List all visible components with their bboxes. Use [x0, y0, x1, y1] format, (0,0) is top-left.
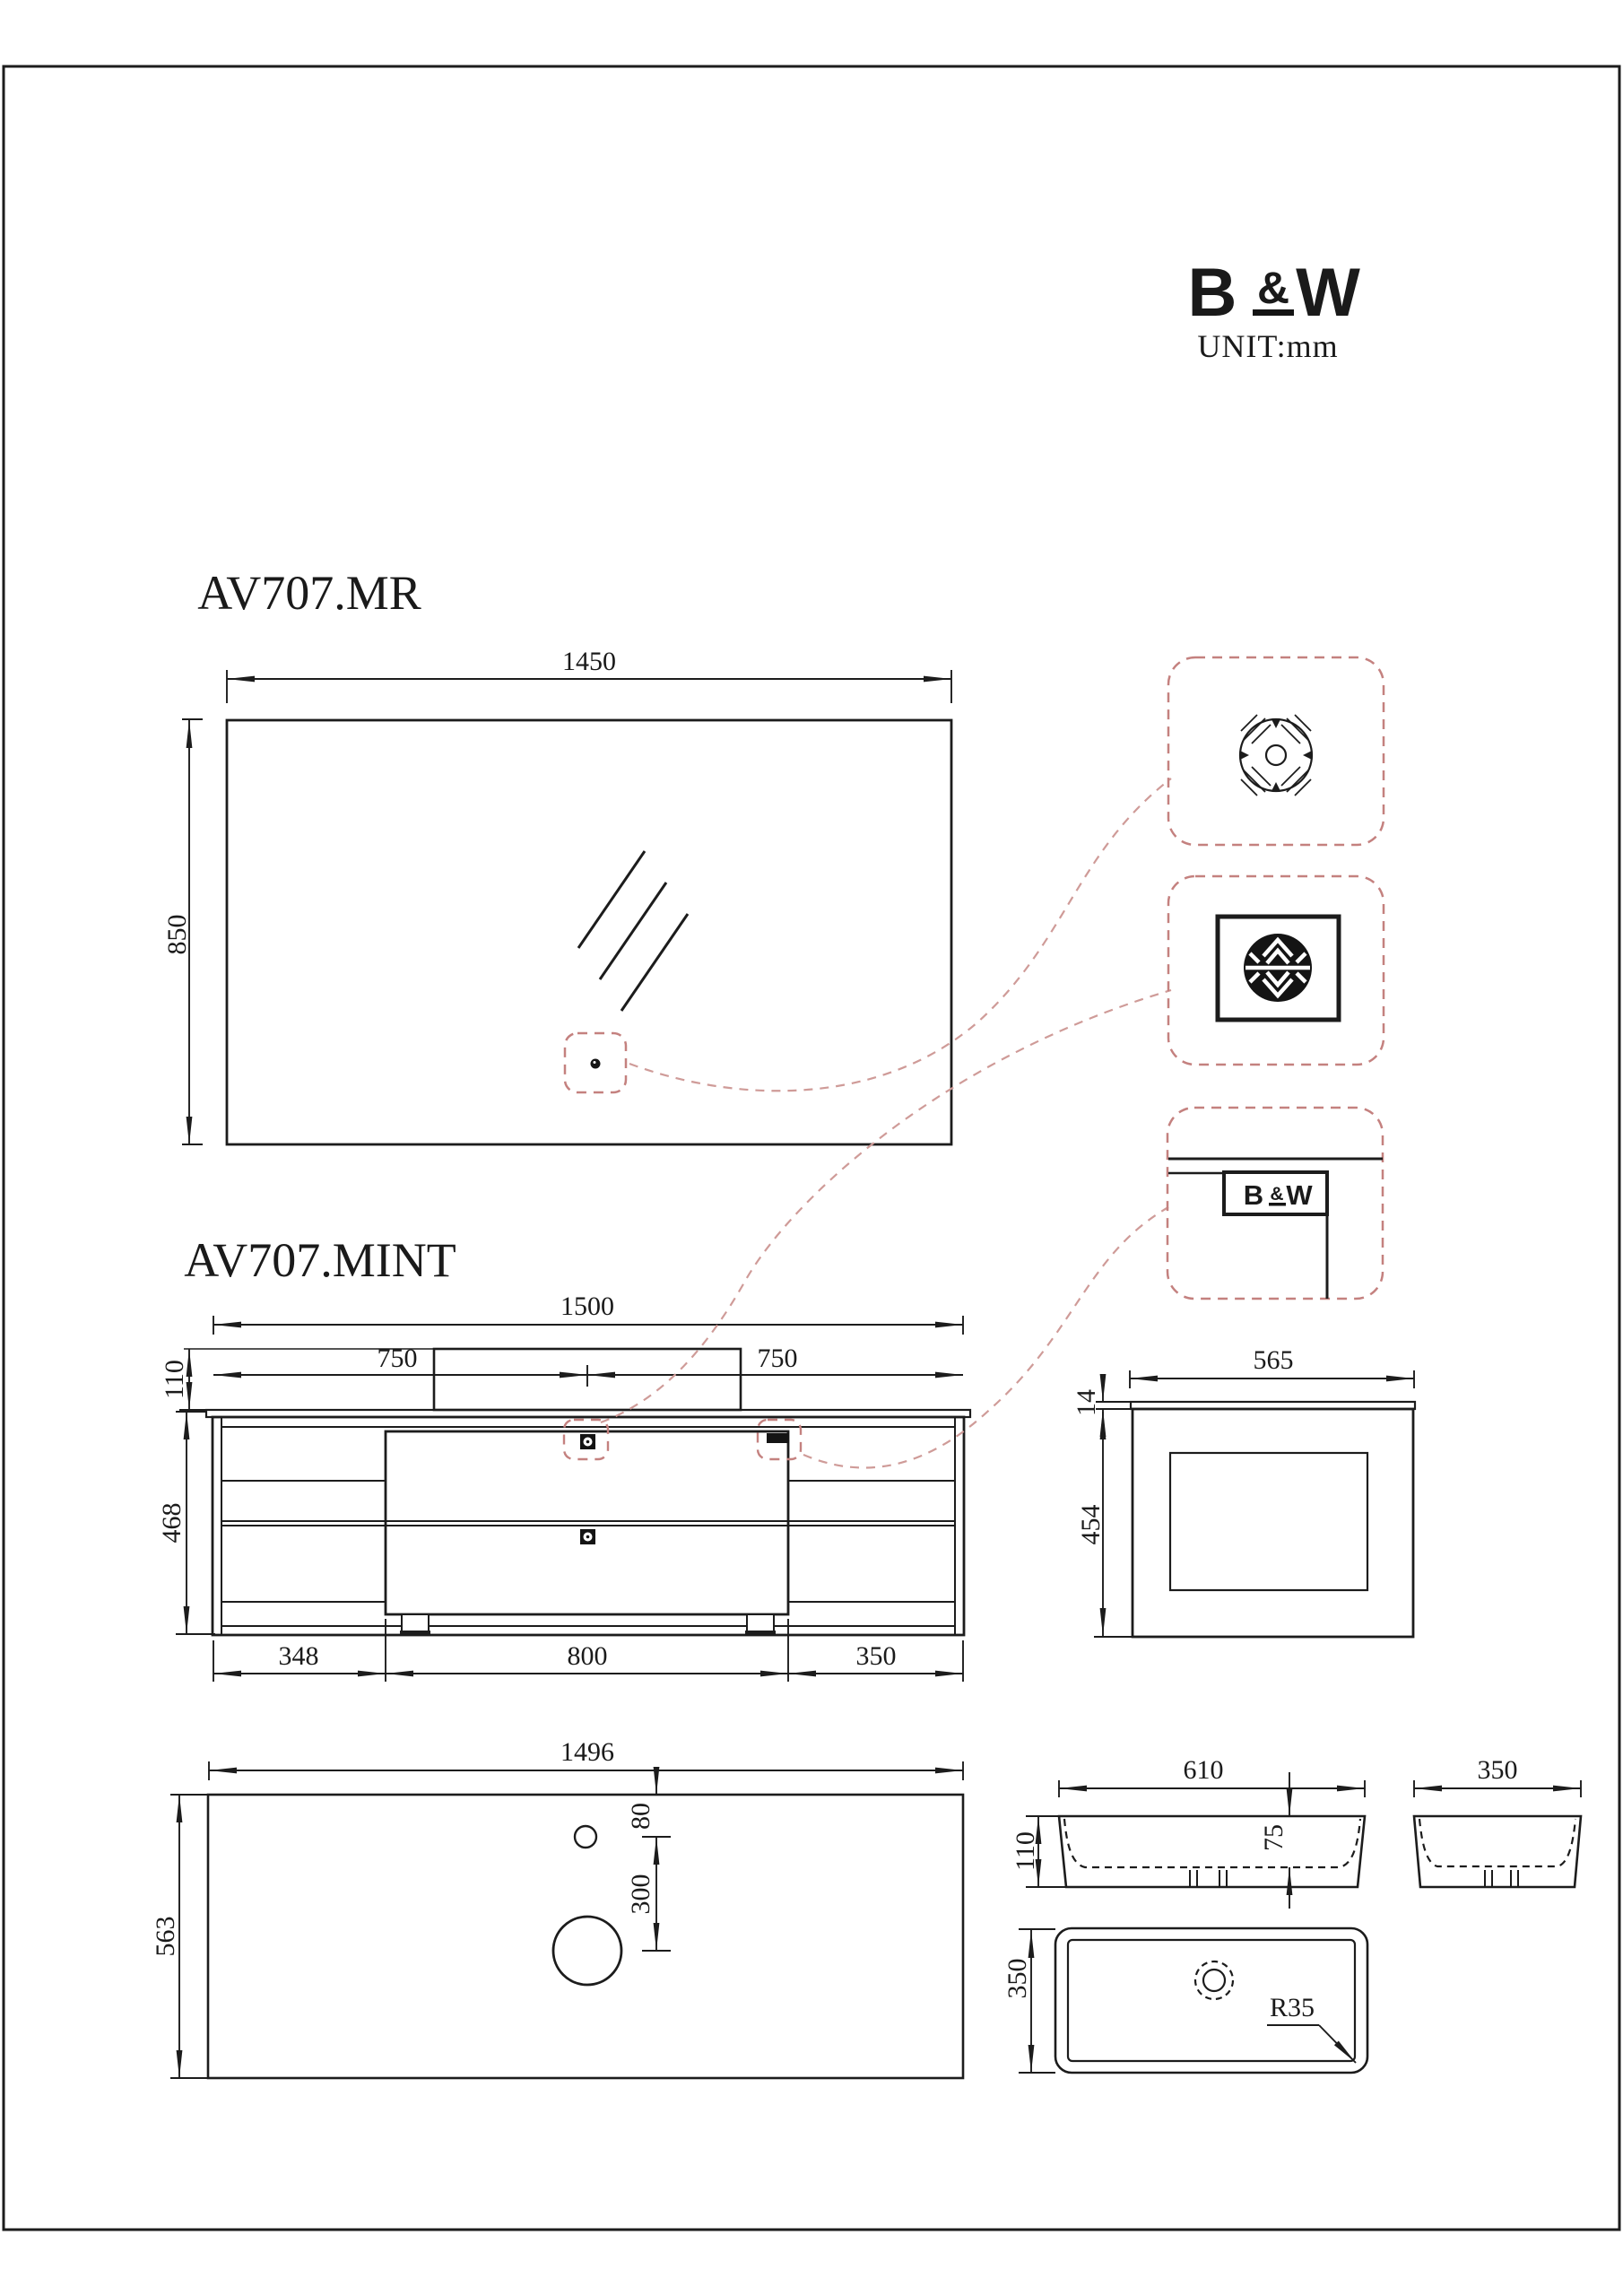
dim-vanity-right-half: 750: [758, 1344, 798, 1373]
drawing-canvas: B & W UNIT:mm AV707.MR 1450 850: [0, 0, 1623, 2296]
basin-front-view: 610 110 75: [1011, 1755, 1365, 1909]
side-body: [1133, 1409, 1413, 1637]
leader-curve-logo: [803, 1207, 1168, 1467]
dim-bottom-left: 348: [279, 1641, 319, 1671]
countertop-dims: [170, 1761, 963, 2078]
basin-side-drain-marks: [1485, 1870, 1518, 1887]
basin-top-outline: [1055, 1928, 1367, 2073]
basin-front-drain-marks: [1190, 1870, 1227, 1887]
dim-mirror-width: 1450: [562, 647, 616, 676]
vanity-front-view: AV707.MINT 1500 750 750 110: [157, 1233, 970, 1682]
drawing-sheet: B & W UNIT:mm AV707.MR 1450 850: [0, 0, 1623, 2296]
knob-face-outline: [1240, 719, 1312, 791]
basin-front-inner-dashed: [1064, 1819, 1360, 1867]
brand-logo: B & W UNIT:mm: [1188, 255, 1362, 364]
dim-vanity-total-width: 1500: [560, 1291, 614, 1321]
countertop-outline: [208, 1795, 963, 2078]
basin-side-outline: [1414, 1816, 1581, 1887]
dim-basin-front-height: 110: [1011, 1831, 1040, 1871]
cabinet-feet: [400, 1614, 776, 1632]
leader-curve-sensor: [629, 778, 1171, 1091]
detail-callout-logo: B & W: [1167, 1108, 1383, 1299]
brand-b: B: [1188, 255, 1239, 331]
knob-face-center: [1266, 745, 1286, 765]
side-panel-inset: [1170, 1453, 1367, 1590]
mirror-touch-sensor-highlight: [594, 1061, 596, 1064]
basin-side-view: 350: [1414, 1755, 1581, 1887]
side-view-dims: [1094, 1370, 1414, 1637]
drawer-knob-lower: [580, 1529, 595, 1544]
dim-basin-height: 110: [160, 1360, 189, 1399]
brand-ampersand: &: [1257, 263, 1289, 313]
dim-basin-side-width: 350: [1478, 1755, 1518, 1785]
dim-bottom-right: 350: [856, 1641, 897, 1671]
dim-drain-offset: 300: [626, 1874, 655, 1915]
brand-ampersand-underline: [1253, 309, 1294, 316]
detail-box-1: [1168, 657, 1384, 845]
badge-b: B: [1244, 1179, 1263, 1211]
unit-label: UNIT:mm: [1197, 328, 1338, 364]
leader-curve-knob: [601, 990, 1171, 1422]
dim-countertop-depth: 563: [151, 1917, 180, 1957]
dim-side-top-thickness: 14: [1072, 1389, 1101, 1416]
drain-hole: [553, 1917, 621, 1985]
detail-callout-knob: [1168, 876, 1384, 1065]
mirror-reflection-hatch: [578, 851, 688, 1011]
dim-basin-front-width: 610: [1184, 1755, 1224, 1785]
detail-leader-curves: [601, 778, 1171, 1467]
basin-top-dims: [1019, 1929, 1055, 2073]
dim-mirror-height: 850: [162, 915, 192, 955]
dim-countertop-width: 1496: [560, 1737, 614, 1767]
mirror-title: AV707.MR: [197, 566, 421, 620]
countertop-top-view: 1496 563 80 300: [151, 1737, 963, 2078]
basin-side-inner-dashed: [1419, 1819, 1575, 1866]
detail-callout-sensor: [1168, 657, 1384, 845]
vanity-top-dims: [179, 1316, 963, 1410]
dim-basin-top-depth: 350: [1002, 1959, 1032, 1999]
dim-vanity-body-height: 468: [157, 1503, 187, 1544]
mirror-view: AV707.MR 1450 850: [162, 566, 951, 1144]
mirror-dims: [182, 670, 951, 1144]
basin-top-drain: [1203, 1970, 1225, 1991]
basin-top-drain-dashed: [1195, 1961, 1233, 1999]
dim-corner-radius: R35: [1270, 1993, 1315, 2022]
cabinet-logo-plate: [767, 1433, 789, 1443]
badge-ampersand: &: [1270, 1184, 1283, 1205]
cabinet-side-view: 565 14 454: [1072, 1345, 1415, 1637]
dim-side-width: 565: [1254, 1345, 1294, 1375]
badge-ampersand-underline: [1269, 1203, 1286, 1206]
dim-bottom-center: 800: [568, 1641, 608, 1671]
brand-w: W: [1296, 255, 1362, 331]
dim-vanity-left-half: 750: [378, 1344, 418, 1373]
mirror-touch-sensor: [591, 1059, 601, 1069]
dim-side-body-height: 454: [1076, 1505, 1106, 1545]
page-border: [4, 66, 1619, 2230]
dim-basin-inner-depth: 75: [1259, 1824, 1289, 1851]
knob-face-hatch: [1240, 715, 1312, 796]
basin-front-outline: [1059, 1816, 1365, 1887]
drawer-knob-upper: [580, 1434, 595, 1449]
radius-leader: [1267, 2025, 1356, 2063]
basin-top-view: 350 R35: [1002, 1928, 1367, 2073]
dim-faucet-offset: 80: [626, 1803, 655, 1830]
vanity-title: AV707.MINT: [184, 1233, 456, 1287]
faucet-hole: [575, 1826, 596, 1848]
badge-w: W: [1286, 1179, 1313, 1211]
